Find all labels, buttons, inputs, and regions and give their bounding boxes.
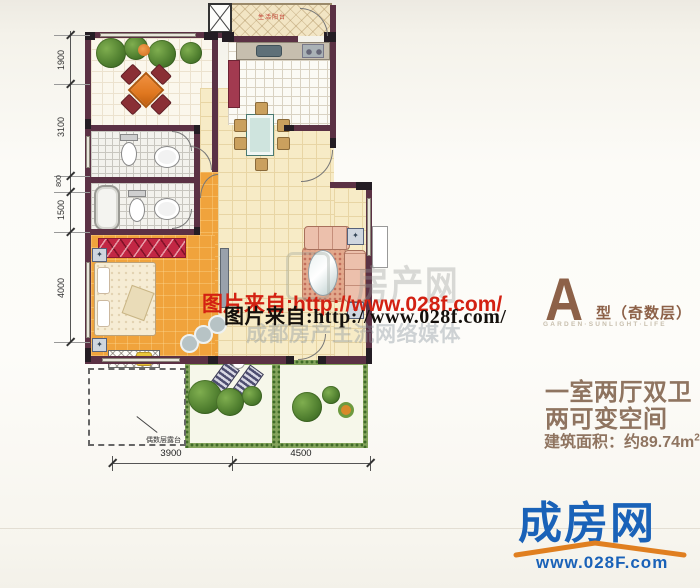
- column: [204, 32, 218, 40]
- column: [356, 182, 372, 190]
- dim-line-bottom: [112, 463, 370, 464]
- kitchen-fridge: [228, 60, 240, 108]
- toilet-bowl: [129, 198, 145, 222]
- floorplan-page: ✦ ✦ ✦ ✦: [0, 0, 700, 588]
- even-floor-terrace-label: 偶数层露台: [146, 435, 181, 445]
- dining-table: [246, 114, 274, 156]
- unit-tagline: GARDEN·SUNLIGHT·LIFE: [543, 321, 667, 328]
- dim-label-left: 4000: [56, 270, 68, 306]
- dim-label-bottom: 3900: [149, 448, 193, 459]
- column: [208, 356, 218, 364]
- window: [86, 136, 90, 168]
- wall: [218, 356, 294, 364]
- wall: [85, 229, 200, 235]
- pillow: [97, 300, 110, 327]
- terrace-plant: [322, 386, 340, 404]
- kitchen-stove: [302, 44, 324, 58]
- column: [222, 32, 234, 42]
- duct-shaft: [208, 3, 232, 33]
- dim-extension: [54, 84, 90, 85]
- column: [366, 348, 372, 364]
- terrace-hedge-divider: [272, 360, 280, 448]
- site-logo-url: www.028F.com: [536, 553, 668, 573]
- dim-label-left: 3100: [56, 109, 68, 145]
- window: [100, 33, 196, 37]
- flower-pot: [138, 44, 150, 56]
- shaft-x-mark: [210, 5, 230, 31]
- wardrobe: [98, 238, 186, 258]
- terrace-plant: [242, 386, 262, 406]
- kitchen-sink: [256, 45, 282, 57]
- dining-chair: [234, 119, 247, 132]
- service-balcony-label: 生活阳台: [258, 12, 286, 21]
- unit-type-label: 型（奇数层）: [596, 302, 692, 323]
- dim-extension: [54, 342, 90, 343]
- balcony-edge: [226, 3, 332, 5]
- column: [318, 356, 326, 364]
- sofa-top: [304, 226, 350, 250]
- dining-chair: [234, 137, 247, 150]
- pillow: [97, 267, 110, 294]
- terrace-hedge-right: [363, 360, 368, 448]
- wall: [85, 125, 200, 131]
- flex-room-plant: [96, 38, 126, 68]
- dim-label-bottom: 4500: [279, 448, 323, 459]
- column: [85, 119, 91, 129]
- dining-chair: [277, 137, 290, 150]
- toilet-tank: [120, 134, 138, 141]
- column: [286, 356, 294, 364]
- unit-area-superscript: 2: [694, 433, 700, 444]
- side-table: ✦: [347, 228, 364, 245]
- nightstand: ✦: [92, 248, 107, 262]
- dining-chair: [255, 102, 268, 115]
- toilet-tank: [128, 190, 146, 197]
- wall: [330, 36, 336, 148]
- unit-area: 建筑面积：约89.74m2: [544, 428, 700, 452]
- nightstand: ✦: [92, 338, 107, 352]
- dim-extension: [54, 232, 90, 233]
- column: [85, 348, 91, 362]
- dim-extension: [54, 35, 90, 36]
- dim-label-left: 1500: [56, 192, 68, 228]
- black-url-watermark: 图片来自:http://www.028f.com/: [224, 300, 506, 329]
- column: [85, 32, 95, 40]
- dining-chair: [255, 158, 268, 171]
- unit-area-text: 建筑面积：约89.74m: [544, 434, 694, 451]
- window: [367, 198, 371, 256]
- column: [284, 125, 294, 131]
- column: [194, 227, 200, 235]
- terrace-plant: [292, 392, 322, 422]
- dim-line-left: [70, 31, 71, 343]
- flex-room-plant: [180, 42, 202, 64]
- bathtub: [94, 185, 120, 231]
- toilet-bowl: [121, 142, 137, 166]
- dim-label-left: 1900: [56, 42, 68, 78]
- column: [330, 138, 336, 148]
- potted-plant: [338, 402, 354, 418]
- column: [194, 125, 200, 134]
- flex-room-plant: [148, 40, 176, 68]
- wall: [194, 125, 200, 235]
- wall: [91, 177, 200, 183]
- window: [86, 262, 90, 338]
- window: [102, 358, 180, 362]
- terrace-plant: [216, 388, 244, 416]
- wall: [212, 32, 218, 172]
